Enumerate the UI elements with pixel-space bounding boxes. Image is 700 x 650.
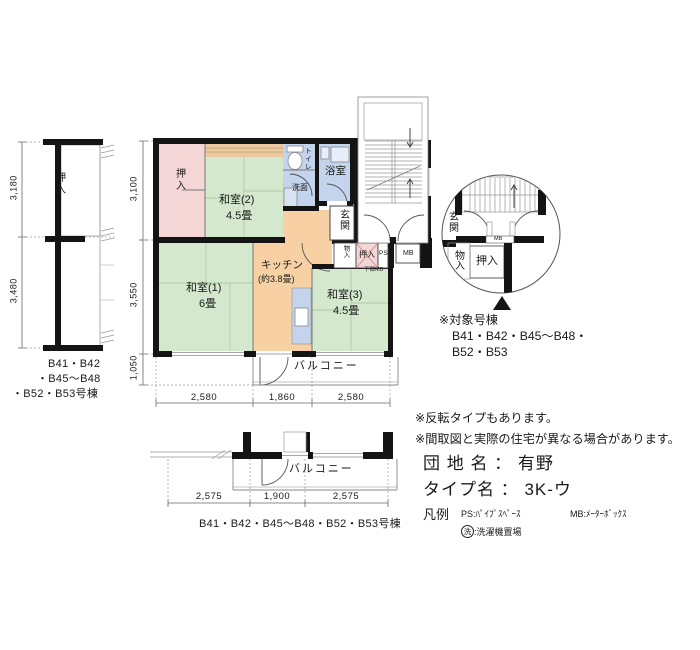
legend-mb-item: MB:ﾒｰﾀｰﾎﾞｯｸｽ xyxy=(570,510,627,519)
balcony2-label: バルコニー xyxy=(289,464,354,476)
left-diagram-closet-label: 押入 xyxy=(53,172,64,196)
balcony-label: バルコニー xyxy=(294,361,359,373)
danchi-name-label: 団 地 名 ： xyxy=(423,454,512,473)
stairwell xyxy=(358,97,428,244)
oshiire-label: 押入 xyxy=(173,168,184,192)
legend-title: 凡例 xyxy=(423,508,449,522)
laundry-circle-icon: 洗 xyxy=(461,525,474,538)
type-name-value: 3K-ウ xyxy=(524,480,571,499)
danchi-name-value: 有野 xyxy=(518,454,554,473)
detail-mb-label: MB xyxy=(494,237,502,243)
dim-2580b: 2,580 xyxy=(329,393,373,403)
legend-ps-item: PS:ﾊﾟｲﾌﾟｽﾍﾟｰｽ xyxy=(461,510,521,519)
mb-label: MB xyxy=(403,250,414,257)
type-name-label: タイプ名 ： xyxy=(423,480,519,499)
floor-plan-drawing xyxy=(0,0,700,650)
bottom-building-label: B41・B42・B45〜B48・B52・B53号棟 xyxy=(199,519,401,531)
wall xyxy=(43,345,103,351)
dim-2575b: 2,575 xyxy=(324,492,368,502)
dim-1860: 1,860 xyxy=(260,393,304,403)
monoire-label: 物入 xyxy=(341,245,348,258)
target-note-line1: B41・B42・B45〜B48・ xyxy=(452,330,588,343)
bath-fixture xyxy=(321,147,329,159)
target-note-title: ※対象号棟 xyxy=(439,314,498,327)
washitsu3-label: 和室(3) xyxy=(327,290,362,302)
note-difference: ※間取図と実際の住宅が異なる場合があります。 xyxy=(415,433,680,446)
dim-3480: 3,480 xyxy=(9,269,18,313)
washitsu2-size: 4.5畳 xyxy=(226,211,252,223)
target-note-line2: B52・B53 xyxy=(452,346,508,359)
washitsu1-size: 6畳 xyxy=(199,299,216,311)
floor-plan-page: 押入 3,180 3,480 B41・B42 ・B45〜B48 ・B52・B53… xyxy=(0,0,700,650)
oshiire2-label: 押入 xyxy=(359,251,375,259)
bathtub-icon xyxy=(331,147,349,162)
washitsu3-size: 4.5畳 xyxy=(333,306,359,318)
kitchen-size: (約3.8畳) xyxy=(258,275,295,284)
washitsu1-label: 和室(1) xyxy=(186,283,221,295)
washitsu2-shelf xyxy=(205,144,283,157)
ps-label: PS xyxy=(379,251,388,258)
pointer-triangle-icon xyxy=(493,296,511,310)
kitchen-label: キッチン xyxy=(261,260,303,271)
type-name-row: タイプ名 ： 3K-ウ xyxy=(423,481,572,499)
danchi-name-row: 団 地 名 ： 有野 xyxy=(423,455,554,473)
toilet-label: トイレ xyxy=(304,147,311,171)
bath-label: 浴室 xyxy=(325,166,346,177)
note-reverse-type: ※反転タイプもあります。 xyxy=(415,412,558,425)
detail-oshiire-label: 押入 xyxy=(476,256,498,268)
legend-laundry-item: 洗:洗濯機置場 xyxy=(461,525,522,538)
legend-laundry-text: :洗濯機置場 xyxy=(474,527,522,537)
detail-monoire-label: 物入 xyxy=(452,250,463,270)
hall xyxy=(283,210,332,243)
lower-mb-label: 下部MB xyxy=(364,268,383,274)
dim-2575a: 2,575 xyxy=(187,492,231,502)
sink-icon xyxy=(295,308,308,326)
wall xyxy=(43,139,103,145)
dim-1900: 1,900 xyxy=(255,492,299,502)
left-building-line1: B41・B42 xyxy=(48,359,100,371)
dim-1050: 1,050 xyxy=(129,346,138,390)
door-arc-balcony xyxy=(260,357,288,385)
left-building-line3: ・B52・B53号棟 xyxy=(12,389,98,401)
wall xyxy=(45,236,85,242)
door-arc-balcony2 xyxy=(262,459,288,485)
toilet-bowl-icon xyxy=(288,153,302,170)
closet-outline xyxy=(61,145,100,236)
dim-3100: 3,100 xyxy=(129,167,138,211)
toilet-tank xyxy=(287,146,303,152)
open-door-leaf xyxy=(284,432,306,452)
dim-3180: 3,180 xyxy=(9,166,18,210)
dim-2580a: 2,580 xyxy=(182,393,226,403)
senmen-label: 洗面 xyxy=(292,184,308,192)
break-hatch-marks xyxy=(101,145,114,343)
washitsu2-label: 和室(2) xyxy=(219,195,254,207)
left-building-line2: ・B45〜B48 xyxy=(37,374,101,386)
left-partial-diagram xyxy=(18,139,116,351)
detail-genkan-label: 玄関 xyxy=(446,211,457,233)
dim-3550: 3,550 xyxy=(129,273,138,317)
genkan-label: 玄関 xyxy=(337,209,348,231)
